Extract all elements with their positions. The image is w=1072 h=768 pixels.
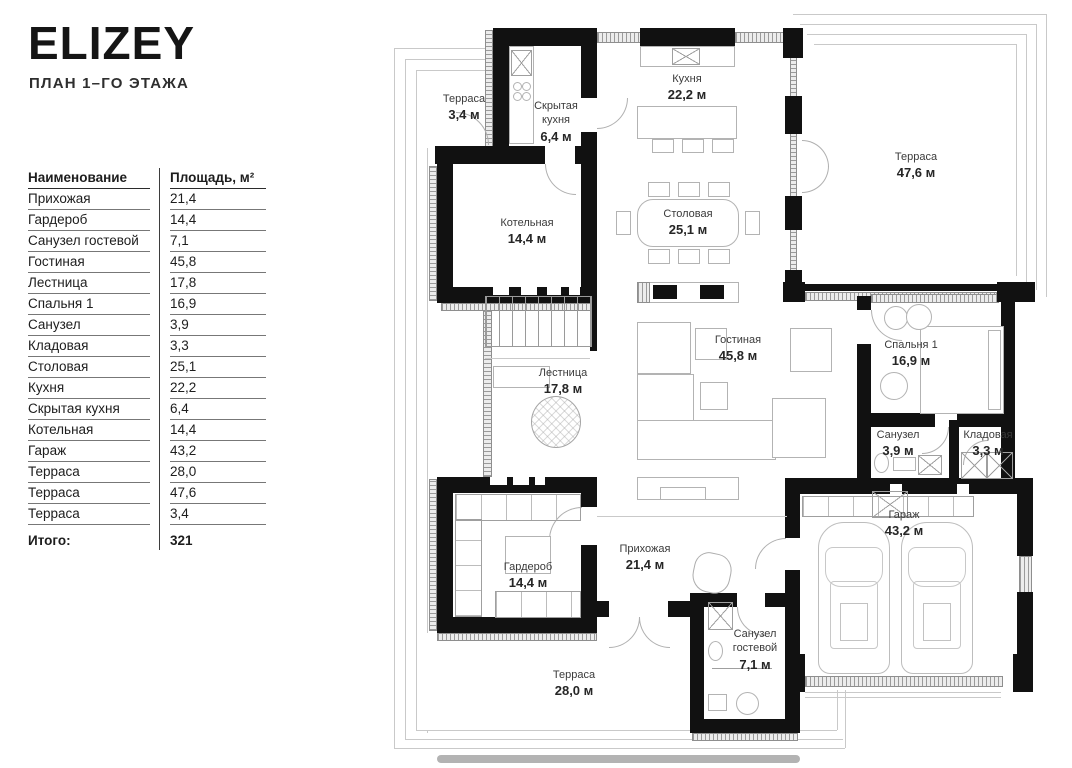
roof-outline-line bbox=[837, 690, 838, 730]
total-value: 321 bbox=[170, 533, 266, 551]
wall-window-notch bbox=[569, 287, 580, 295]
room-name: Гараж bbox=[870, 508, 938, 522]
room-area: 22,2 м bbox=[655, 87, 719, 104]
row-area: 3,3 bbox=[170, 338, 266, 357]
column-header-area: Площадь, м² bbox=[170, 170, 266, 189]
row-area: 43,2 bbox=[170, 443, 266, 462]
armchair bbox=[790, 328, 832, 372]
wall bbox=[581, 44, 597, 98]
wall bbox=[957, 413, 1015, 427]
room-name: Скрытая кухня bbox=[523, 99, 589, 128]
table-row: Лестница17,8 bbox=[28, 273, 271, 294]
bar-stool bbox=[682, 139, 704, 153]
room-label-terrace-small: Терраса3,4 м bbox=[432, 92, 496, 124]
tv-console-detail bbox=[660, 487, 706, 500]
row-area: 14,4 bbox=[170, 422, 266, 441]
table-row: Гардероб14,4 bbox=[28, 210, 271, 231]
table-row: Санузел3,9 bbox=[28, 315, 271, 336]
roof-outline-line bbox=[1026, 34, 1027, 283]
room-label-terrace-28: Терраса28,0 м bbox=[538, 668, 610, 700]
wall bbox=[1017, 494, 1033, 556]
wall bbox=[435, 146, 545, 164]
room-label-garage: Гараж43,2 м bbox=[870, 508, 938, 540]
wall bbox=[581, 164, 597, 303]
room-label-boiler: Котельная14,4 м bbox=[487, 216, 567, 248]
table-row: Прихожая21,4 bbox=[28, 189, 271, 210]
row-name: Спальня 1 bbox=[28, 296, 150, 315]
wall bbox=[493, 28, 509, 154]
row-name: Скрытая кухня bbox=[28, 401, 150, 420]
closet-row bbox=[495, 591, 581, 618]
wall bbox=[857, 413, 935, 427]
row-area: 6,4 bbox=[170, 401, 266, 420]
row-name: Кладовая bbox=[28, 338, 150, 357]
wall-window-notch bbox=[957, 484, 969, 494]
car bbox=[901, 522, 973, 674]
wall bbox=[437, 164, 453, 303]
row-name: Прихожая bbox=[28, 191, 150, 210]
row-area: 7,1 bbox=[170, 233, 266, 252]
bar-stool bbox=[712, 139, 734, 153]
dining-chair bbox=[616, 211, 631, 235]
row-area: 47,6 bbox=[170, 485, 266, 504]
wall bbox=[785, 96, 802, 134]
glazed-wall bbox=[790, 30, 797, 282]
kitchen-island bbox=[637, 106, 737, 139]
wall-window-notch bbox=[513, 477, 529, 485]
room-area: 28,0 м bbox=[538, 683, 610, 700]
row-area: 28,0 bbox=[170, 464, 266, 483]
window-strip bbox=[735, 32, 785, 43]
row-name: Санузел гостевой bbox=[28, 233, 150, 252]
kitchen-sink bbox=[672, 48, 700, 65]
wall bbox=[785, 478, 800, 538]
row-name: Кухня bbox=[28, 380, 150, 399]
dining-chair bbox=[648, 182, 670, 197]
row-name: Терраса bbox=[28, 485, 150, 504]
fireplace-block bbox=[653, 285, 677, 299]
room-label-bedroom1: Спальня 116,9 м bbox=[874, 338, 948, 370]
burner bbox=[513, 82, 522, 91]
room-label-stairs: Лестница17,8 м bbox=[524, 366, 602, 398]
fireplace-hatch bbox=[637, 282, 650, 303]
room-name: Терраса bbox=[880, 150, 952, 164]
wall bbox=[785, 196, 802, 230]
total-label: Итого: bbox=[28, 533, 150, 551]
wall bbox=[640, 28, 735, 46]
terrace-edge-band bbox=[437, 755, 800, 763]
room-name: Котельная bbox=[487, 216, 567, 230]
table-row: Гараж43,2 bbox=[28, 441, 271, 462]
wall-window-notch bbox=[535, 477, 545, 485]
dining-chair bbox=[648, 249, 670, 264]
room-label-wardrobe: Гардероб14,4 м bbox=[490, 560, 566, 592]
room-area: 14,4 м bbox=[487, 231, 567, 248]
room-area: 14,4 м bbox=[490, 575, 566, 592]
room-area: 7,1 м bbox=[718, 657, 792, 674]
wall bbox=[765, 593, 787, 607]
burner bbox=[522, 82, 531, 91]
room-label-hidden-kitchen: Скрытая кухня6,4 м bbox=[523, 99, 589, 145]
sofa bbox=[637, 322, 691, 374]
window-strip bbox=[597, 32, 642, 43]
fireplace-block bbox=[700, 285, 724, 299]
table-row: Терраса47,6 bbox=[28, 483, 271, 504]
roof-outline-line bbox=[416, 70, 417, 730]
exterior-hatch bbox=[429, 479, 437, 631]
coffee-table bbox=[700, 382, 728, 410]
roof-outline-line bbox=[1016, 44, 1017, 276]
room-name: Санузел гостевой bbox=[718, 627, 792, 656]
lounge-chair bbox=[884, 306, 908, 330]
window-strip bbox=[1019, 556, 1032, 594]
desk-chair bbox=[880, 372, 908, 400]
floor-plan-page: ELIZEY ПЛАН 1–ГО ЭТАЖА Наименование Площ… bbox=[0, 0, 1072, 768]
room-area: 47,6 м bbox=[880, 165, 952, 182]
room-name: Кладовая bbox=[955, 428, 1021, 442]
roof-outline-line bbox=[394, 748, 845, 749]
bar-stool bbox=[652, 139, 674, 153]
table-total-row: Итого: 321 bbox=[28, 525, 271, 551]
table-row: Санузел гостевой7,1 bbox=[28, 231, 271, 252]
roof-outline-line bbox=[1046, 14, 1047, 297]
table-row: Столовая25,1 bbox=[28, 357, 271, 378]
wall-window-notch bbox=[493, 287, 509, 295]
car-sunroof bbox=[923, 603, 951, 641]
roof-outline-line bbox=[793, 14, 1046, 15]
window-strip bbox=[871, 294, 999, 303]
row-area: 25,1 bbox=[170, 359, 266, 378]
room-name: Терраса bbox=[538, 668, 610, 682]
roof-outline-line bbox=[807, 34, 1026, 35]
lounge-chair bbox=[906, 304, 932, 330]
wall bbox=[668, 601, 704, 617]
room-label-storage: Кладовая3,3 м bbox=[955, 428, 1021, 460]
dining-chair bbox=[678, 182, 700, 197]
room-area: 3,9 м bbox=[868, 443, 928, 460]
table-row: Гостиная45,8 bbox=[28, 252, 271, 273]
shower-box bbox=[708, 602, 733, 630]
table-row: Терраса28,0 bbox=[28, 462, 271, 483]
exterior-hatch bbox=[437, 633, 597, 641]
roof-outline-line bbox=[800, 24, 1036, 25]
room-label-hallway: Прихожая21,4 м bbox=[608, 542, 682, 574]
window-glazing bbox=[429, 166, 437, 301]
wall-window-notch bbox=[547, 287, 561, 295]
wall bbox=[575, 146, 597, 164]
garage-door-line bbox=[805, 697, 1001, 698]
room-name: Прихожая bbox=[608, 542, 682, 556]
closet-row bbox=[455, 494, 581, 521]
row-name: Гардероб bbox=[28, 212, 150, 231]
roof-outline-line bbox=[405, 59, 406, 739]
wall bbox=[1013, 654, 1033, 692]
row-name: Терраса bbox=[28, 464, 150, 483]
room-area: 16,9 м bbox=[874, 353, 948, 370]
guest-sink bbox=[736, 692, 759, 715]
row-area: 22,2 bbox=[170, 380, 266, 399]
room-area: 25,1 м bbox=[650, 222, 726, 239]
roof-outline-line bbox=[394, 48, 395, 748]
wall bbox=[787, 284, 999, 291]
table-row: Скрытая кухня6,4 bbox=[28, 399, 271, 420]
room-area: 45,8 м bbox=[700, 348, 776, 365]
closet-column bbox=[455, 519, 482, 617]
room-label-kitchen: Кухня22,2 м bbox=[655, 72, 719, 104]
row-name: Котельная bbox=[28, 422, 150, 441]
dining-chair bbox=[745, 211, 760, 235]
room-label-terrace-large: Терраса47,6 м bbox=[880, 150, 952, 182]
table-row: Кладовая3,3 bbox=[28, 336, 271, 357]
table-row: Кухня22,2 bbox=[28, 378, 271, 399]
staircase bbox=[485, 296, 592, 347]
burner bbox=[513, 92, 522, 101]
page-title: ПЛАН 1–ГО ЭТАЖА bbox=[29, 75, 189, 92]
wall bbox=[581, 477, 597, 507]
wall bbox=[857, 296, 871, 310]
room-area: 6,4 м bbox=[523, 129, 589, 146]
car-sunroof bbox=[840, 603, 868, 641]
row-name: Гараж bbox=[28, 443, 150, 462]
row-name: Лестница bbox=[28, 275, 150, 294]
row-area: 3,4 bbox=[170, 506, 266, 525]
stove bbox=[511, 50, 532, 76]
wall-window-notch bbox=[521, 287, 537, 295]
roof-outline-line bbox=[1036, 24, 1037, 290]
table-column-divider bbox=[159, 168, 160, 550]
room-label-dining: Столовая25,1 м bbox=[650, 207, 726, 239]
wall bbox=[581, 545, 597, 633]
garage-door-sill bbox=[805, 676, 1003, 687]
room-name: Гостиная bbox=[700, 333, 776, 347]
roof-outline-line bbox=[845, 690, 846, 748]
wall bbox=[1017, 592, 1033, 654]
room-area: 21,4 м bbox=[608, 557, 682, 574]
room-name: Гардероб bbox=[490, 560, 566, 574]
wall bbox=[690, 719, 800, 733]
room-label-living: Гостиная45,8 м bbox=[700, 333, 776, 365]
floor-boundary-line bbox=[597, 516, 787, 517]
sofa bbox=[772, 398, 826, 458]
room-name: Лестница bbox=[524, 366, 602, 380]
row-name: Санузел bbox=[28, 317, 150, 336]
room-area: 43,2 м bbox=[870, 523, 938, 540]
wall bbox=[783, 28, 803, 58]
room-area: 3,3 м bbox=[955, 443, 1021, 460]
dining-chair bbox=[678, 249, 700, 264]
wall bbox=[437, 617, 597, 633]
wall bbox=[787, 478, 1033, 494]
table-row: Спальня 116,9 bbox=[28, 294, 271, 315]
room-area: 17,8 м bbox=[524, 381, 602, 398]
sofa bbox=[637, 420, 776, 460]
wall-window-notch bbox=[490, 477, 507, 485]
row-name: Столовая bbox=[28, 359, 150, 378]
dining-chair bbox=[708, 182, 730, 197]
wall bbox=[437, 477, 453, 633]
dining-chair bbox=[708, 249, 730, 264]
room-name: Санузел bbox=[868, 428, 928, 442]
row-name: Терраса bbox=[28, 506, 150, 525]
room-area: 3,4 м bbox=[432, 107, 496, 124]
table-row: Котельная14,4 bbox=[28, 420, 271, 441]
room-name: Столовая bbox=[650, 207, 726, 221]
stair-landing-line bbox=[485, 358, 590, 359]
roof-outline-line bbox=[814, 44, 1016, 45]
row-area: 3,9 bbox=[170, 317, 266, 336]
row-area: 45,8 bbox=[170, 254, 266, 273]
bed-pillow bbox=[988, 330, 1001, 410]
row-area: 17,8 bbox=[170, 275, 266, 294]
room-name: Терраса bbox=[432, 92, 496, 106]
area-table: Наименование Площадь, м² Прихожая21,4 Га… bbox=[28, 166, 271, 551]
wall bbox=[583, 601, 609, 617]
room-name: Спальня 1 bbox=[874, 338, 948, 352]
row-area: 16,9 bbox=[170, 296, 266, 315]
car bbox=[818, 522, 890, 674]
hanging-chair bbox=[531, 396, 581, 448]
row-area: 21,4 bbox=[170, 191, 266, 210]
row-name: Гостиная bbox=[28, 254, 150, 273]
garage-door-line bbox=[805, 692, 1001, 693]
brand-logo: ELIZEY bbox=[28, 16, 195, 70]
column-header-name: Наименование bbox=[28, 170, 150, 189]
room-name: Кухня bbox=[655, 72, 719, 86]
exterior-hatch bbox=[692, 733, 798, 741]
table-row: Терраса3,4 bbox=[28, 504, 271, 525]
room-label-bathroom: Санузел3,9 м bbox=[868, 428, 928, 460]
room-label-guest-bathroom: Санузел гостевой7,1 м bbox=[718, 627, 792, 673]
guest-cabinet bbox=[708, 694, 727, 711]
row-area: 14,4 bbox=[170, 212, 266, 231]
table-header-row: Наименование Площадь, м² bbox=[28, 166, 271, 189]
